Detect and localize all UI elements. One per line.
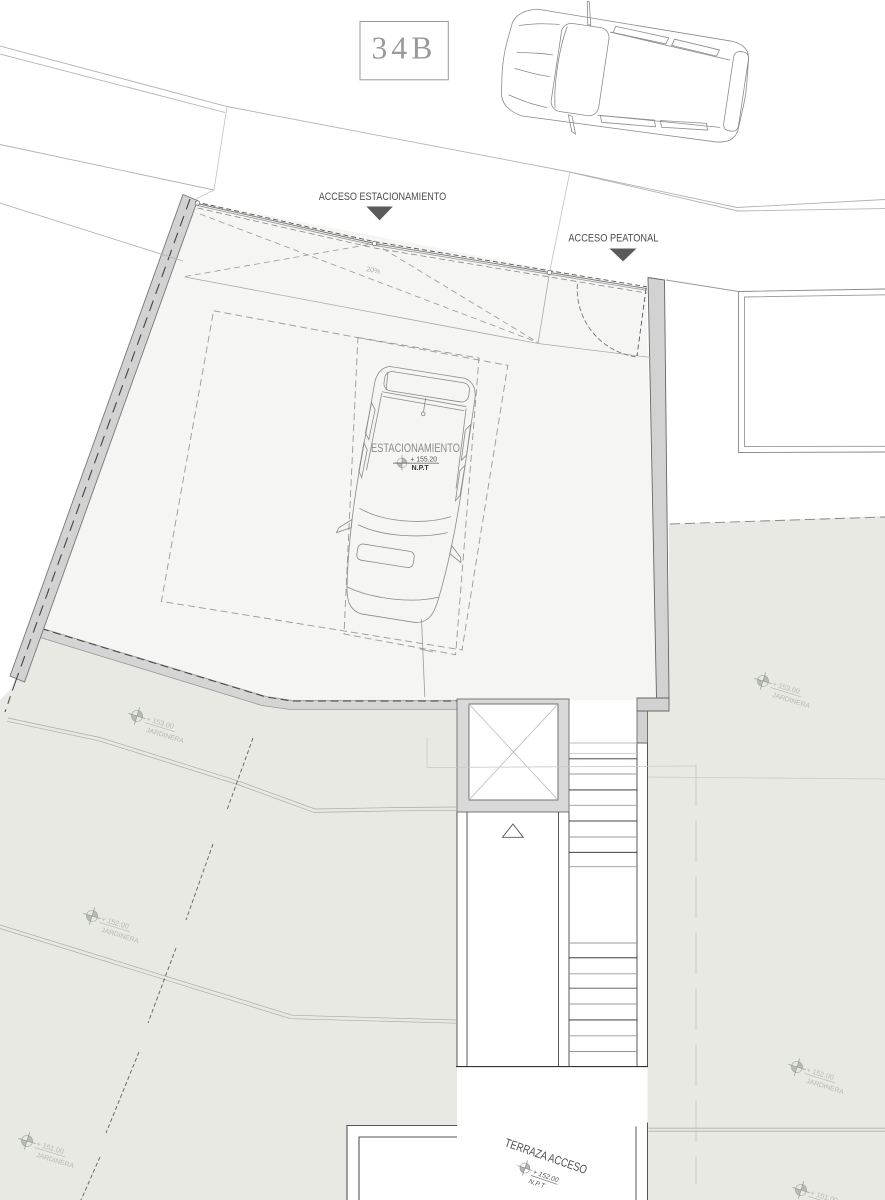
svg-text:34B: 34B (371, 30, 436, 65)
svg-text:N.P.T: N.P.T (412, 465, 430, 472)
svg-text:+ 155.20: + 155.20 (411, 456, 438, 463)
svg-text:ACCESO ESTACIONAMIENTO: ACCESO ESTACIONAMIENTO (319, 191, 447, 203)
svg-text:ACCESO PEATONAL: ACCESO PEATONAL (568, 233, 658, 245)
svg-text:ESTACIONAMIENTO: ESTACIONAMIENTO (371, 443, 460, 455)
